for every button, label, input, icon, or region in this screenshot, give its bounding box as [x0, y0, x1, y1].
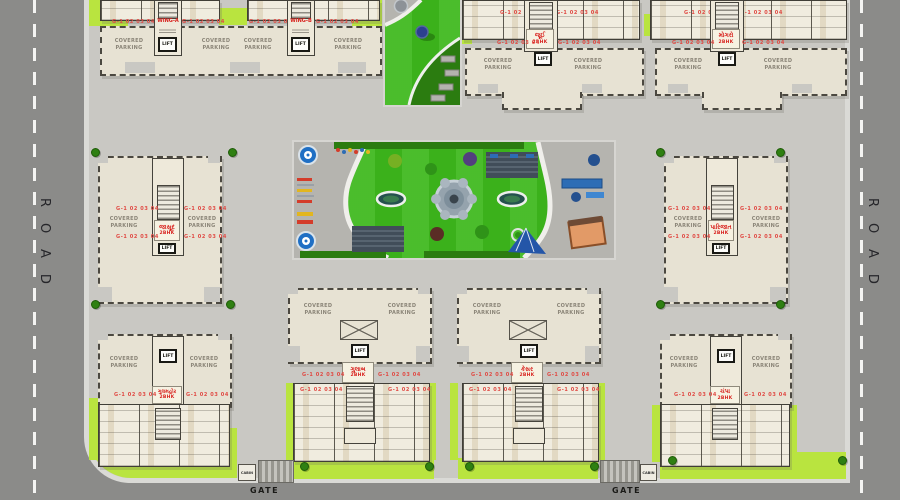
- building-name-plate: જૂઈ 2BHK: [526, 29, 554, 49]
- tree-icon: [776, 148, 785, 157]
- blue-sphere-icon: [416, 26, 435, 41]
- unit-numbers: G-1 02 03 04: [740, 234, 783, 240]
- tree-icon: [425, 462, 434, 471]
- unit-numbers: G-1 02 03 04: [300, 387, 343, 393]
- central-garden: [292, 140, 616, 260]
- fountain-icon: [431, 178, 477, 220]
- tree-icon: [776, 300, 785, 309]
- parking-notch: [587, 286, 599, 294]
- garden-strip-graphic: [385, 0, 460, 105]
- staircase: [291, 2, 311, 19]
- unit-numbers: G-1 02 03 04: [388, 387, 431, 393]
- unit-numbers: G-1 02 03 04: [302, 372, 345, 378]
- parking-notch: [208, 154, 220, 163]
- parking-notch: [416, 346, 430, 362]
- parking-notch: [792, 84, 812, 93]
- entrance-lobby: [344, 428, 376, 444]
- building-name: ચંપા: [720, 389, 730, 396]
- unit-numbers: G-1 02 03 04: [184, 234, 227, 240]
- tree-icon: [91, 300, 100, 309]
- bench-icon: [441, 56, 455, 62]
- staircase: [158, 2, 178, 19]
- tree-icon: [465, 462, 474, 471]
- unit-numbers: G-1 02 03 04: [116, 234, 159, 240]
- gate-barrier-left: [258, 460, 294, 483]
- covered-parking-label: COVERED PARKING: [549, 303, 593, 316]
- staircase: [346, 386, 374, 422]
- covered-parking-label: COVERED PARKING: [472, 58, 524, 71]
- gate-label-left: GATE: [250, 486, 279, 495]
- tree-icon: [656, 300, 665, 309]
- unit-numbers: G-1 02 03 04: [249, 19, 292, 25]
- ramp-cross-box: [340, 320, 378, 340]
- unit-numbers: G-1 02 03 04: [114, 392, 157, 398]
- unit-numbers: G-1 02 03 04: [557, 387, 600, 393]
- unit-numbers: G-1 02 03 04: [316, 19, 359, 25]
- lift-box: LIFT: [520, 344, 538, 358]
- unit-numbers: G-1 02 03 04: [674, 392, 717, 398]
- staircase: [711, 185, 734, 220]
- bhk-label: 2BHK: [713, 231, 728, 236]
- unit-numbers: G-1 02 03 04: [668, 206, 711, 212]
- bhk-label: 2BHK: [350, 373, 365, 378]
- unit-numbers: G-1 02 03 04: [497, 40, 540, 46]
- covered-parking-label: COVERED PARKING: [102, 216, 146, 229]
- parking-notch: [478, 84, 498, 93]
- bench-icon: [445, 70, 459, 76]
- staircase: [715, 2, 739, 30]
- road-label-right: ROAD: [865, 198, 880, 300]
- building-name: જૂઈ: [535, 33, 545, 40]
- covered-parking-label: COVERED PARKING: [465, 303, 509, 316]
- covered-parking-label: COVERED PARKING: [102, 356, 146, 369]
- canopy-icon: [568, 216, 606, 248]
- tree-icon: [838, 456, 847, 465]
- bhk-label: 2BHK: [159, 395, 174, 400]
- entrance-lobby: [513, 428, 545, 444]
- parking-notch: [455, 286, 467, 294]
- lift-box: LIFT: [718, 52, 736, 66]
- garden-strip: [383, 0, 462, 107]
- bhk-label: 2BHK: [717, 396, 732, 401]
- parking-notch: [778, 332, 790, 340]
- stair-core-wing-b: WING-B LIFT: [287, 0, 315, 56]
- parking-notch: [582, 84, 602, 93]
- covered-parking-label: COVERED PARKING: [744, 216, 788, 229]
- lift-box: LIFT: [159, 349, 177, 363]
- parking-notch: [338, 62, 366, 73]
- unit-numbers: G-1 02 03 04: [672, 40, 715, 46]
- parking-notch: [125, 62, 155, 73]
- unit-numbers: G-1 02 03 04: [378, 372, 421, 378]
- site-plan: ROAD ROAD G-1 02 03 04 G-1 02 03 04 G-1 …: [0, 0, 900, 500]
- ramp-cross-box: [509, 320, 547, 340]
- lift-box: LIFT: [712, 243, 730, 254]
- covered-parking-label: COVERED PARKING: [232, 38, 284, 51]
- unit-numbers: G-1 02 03 04: [469, 387, 512, 393]
- parking-notch: [662, 287, 678, 302]
- lane-marking-right: [860, 0, 863, 500]
- hedge: [424, 251, 520, 258]
- lift-box: LIFT: [351, 344, 369, 358]
- parking-notch: [96, 332, 108, 340]
- unit-numbers: G-1 02 03 04: [116, 206, 159, 212]
- bhk-label: 2BHK: [519, 373, 534, 378]
- tree-icon: [300, 462, 309, 471]
- parking-notch: [96, 287, 112, 302]
- unit-numbers: G-1 02 03 04: [182, 19, 225, 25]
- gate-label-right: GATE: [612, 486, 641, 495]
- covered-parking-label: COVERED PARKING: [662, 356, 706, 369]
- unit-numbers: G-1 02 03 04: [740, 206, 783, 212]
- unit-numbers: G-1 02 03 04: [668, 234, 711, 240]
- building-name-plate: કેસર 2BHK: [511, 362, 543, 383]
- unit-numbers: G-1 02 03 04: [556, 10, 599, 16]
- lift-box: LIFT: [158, 37, 177, 52]
- staircase: [155, 408, 181, 440]
- unit-numbers: G-1 02 03 04: [547, 372, 590, 378]
- seating-lawn: [409, 38, 460, 105]
- lift-box: LIFT: [291, 37, 310, 52]
- tree-icon: [91, 148, 100, 157]
- gate-cabin-left: CABIN: [238, 464, 256, 481]
- lawn-patch: [652, 405, 660, 462]
- covered-parking-label: COVERED PARKING: [182, 356, 226, 369]
- apartment-band: [650, 0, 847, 40]
- lift-box: LIFT: [717, 349, 735, 363]
- unit-numbers: G-1 02 03 04: [744, 392, 787, 398]
- bench-icon: [431, 95, 445, 101]
- hedge: [334, 142, 524, 149]
- covered-parking-label: COVERED PARKING: [103, 38, 155, 51]
- tree-icon: [226, 300, 235, 309]
- unit-numbers: G-1 02 03 04: [740, 10, 783, 16]
- parking-notch: [418, 286, 430, 294]
- unit-numbers: G-1 02 03 04: [558, 40, 601, 46]
- parking-notch: [585, 346, 599, 362]
- parking-notch: [668, 84, 688, 93]
- unit-numbers: G-1 02 03 04: [186, 392, 229, 398]
- lift-box: LIFT: [158, 243, 176, 254]
- covered-parking-slab: [702, 92, 782, 110]
- unit-numbers: G-1 02 03 04: [742, 40, 785, 46]
- tree-icon: [590, 462, 599, 471]
- fine-print: [159, 29, 176, 33]
- staircase: [529, 2, 553, 30]
- fine-print: [292, 29, 309, 33]
- building-name-plate: પારિજાત 2BHK: [708, 220, 734, 241]
- lawn-patch: [89, 398, 98, 460]
- gate-barrier-right: [600, 460, 640, 483]
- garden-graphic: [294, 142, 614, 258]
- stair-core-wing-a: WING-A LIFT: [154, 0, 182, 56]
- lane-marking-left: [33, 0, 36, 500]
- unit-numbers: G-1 02 03 04: [184, 206, 227, 212]
- gate-cabin-right: CABIN: [640, 464, 657, 481]
- tree-icon: [228, 148, 237, 157]
- covered-parking-label: COVERED PARKING: [180, 216, 224, 229]
- building-name: મોગરો: [719, 33, 734, 40]
- lawn-patch: [450, 383, 458, 460]
- parking-notch: [204, 287, 220, 302]
- wing-a-label: WING-A: [155, 19, 181, 25]
- hedge: [300, 251, 386, 258]
- building-name-plate: ગુલાબ 2BHK: [342, 362, 374, 383]
- wing-b-label: WING-B: [288, 19, 314, 25]
- rock-icon: [395, 0, 408, 13]
- bhk-label: 2BHK: [159, 231, 174, 236]
- bhk-label: 2BHK: [718, 40, 733, 45]
- parking-notch: [658, 332, 670, 340]
- unit-numbers: G-1 02 03 04: [471, 372, 514, 378]
- staircase: [157, 185, 180, 220]
- covered-parking-label: COVERED PARKING: [744, 356, 788, 369]
- unit-numbers: G-1 02 03 04: [112, 19, 155, 25]
- staircase: [712, 408, 738, 440]
- covered-parking-label: COVERED PARKING: [752, 58, 804, 71]
- covered-parking-label: COVERED PARKING: [662, 58, 714, 71]
- covered-parking-label: COVERED PARKING: [380, 303, 424, 316]
- tree-icon: [668, 456, 677, 465]
- parking-notch: [286, 346, 300, 362]
- covered-parking-label: COVERED PARKING: [666, 216, 710, 229]
- parking-notch: [218, 332, 230, 340]
- covered-parking-slab: [502, 92, 582, 110]
- parking-notch: [455, 346, 469, 362]
- bench-icon: [439, 84, 453, 90]
- tree-icon: [656, 148, 665, 157]
- parking-notch: [230, 62, 260, 73]
- staircase: [515, 386, 543, 422]
- road-label-left: ROAD: [37, 198, 52, 300]
- building-name-plate: મોગરો 2BHK: [712, 29, 740, 49]
- covered-parking-label: COVERED PARKING: [562, 58, 614, 71]
- covered-parking-label: COVERED PARKING: [322, 38, 374, 51]
- lift-box: LIFT: [534, 52, 552, 66]
- stair-core: મોગરો 2BHK: [710, 0, 744, 52]
- covered-parking-label: COVERED PARKING: [296, 303, 340, 316]
- parking-notch: [286, 286, 298, 294]
